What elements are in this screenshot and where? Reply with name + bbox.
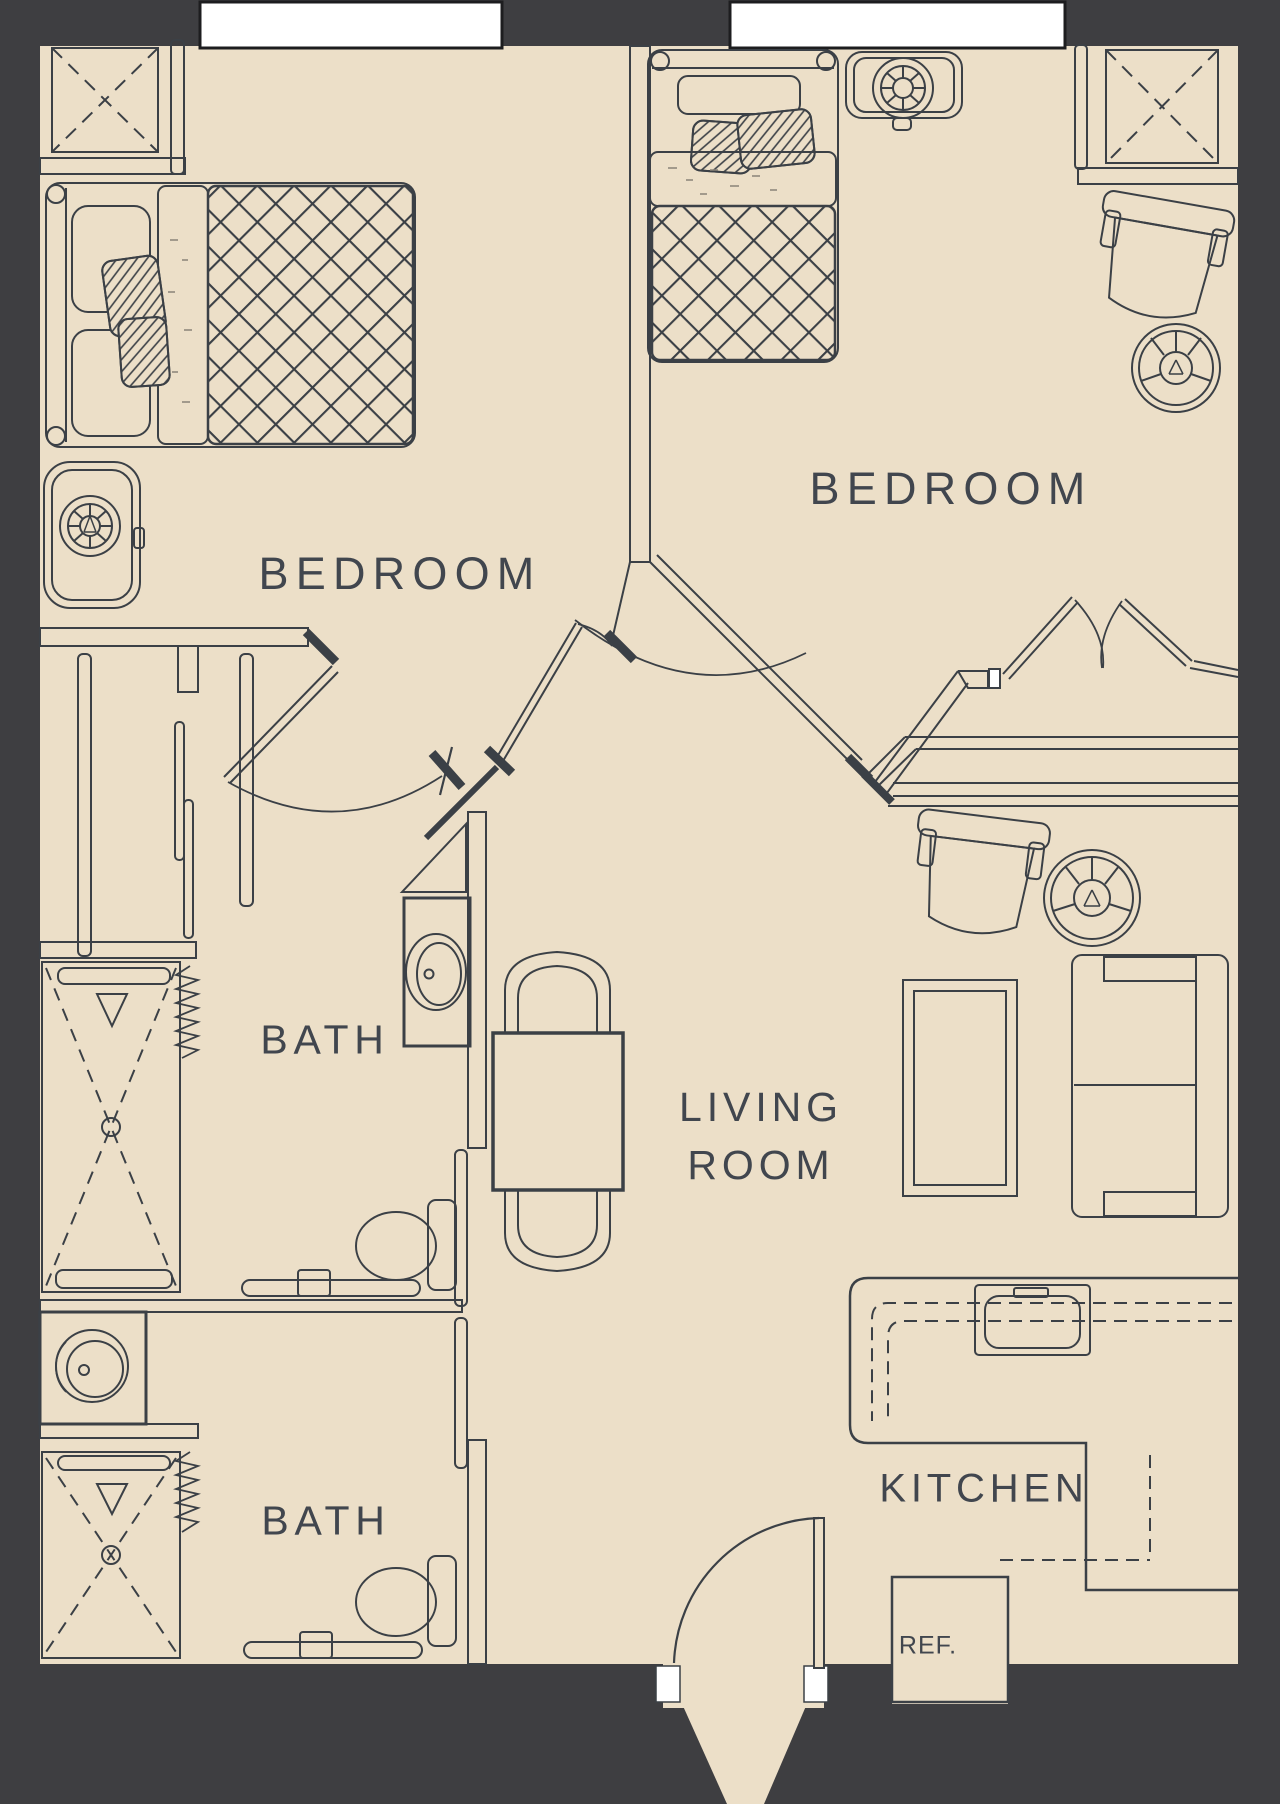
room-label-bath-lower: BATH	[261, 1498, 390, 1545]
room-label-bedroom-left: BEDROOM	[259, 548, 542, 600]
room-label-living-room: LIVING ROOM	[679, 1078, 843, 1194]
floor-plan-drawing	[0, 0, 1280, 1804]
room-label-bath-upper: BATH	[260, 1017, 389, 1064]
room-label-kitchen: KITCHEN	[879, 1467, 1088, 1512]
floor-plan: BEDROOM BEDROOM BATH BATH LIVING ROOM KI…	[0, 0, 1280, 1804]
entry-opening	[663, 1664, 824, 1708]
room-label-refrigerator: REF.	[899, 1632, 957, 1661]
room-label-bedroom-right: BEDROOM	[810, 463, 1093, 515]
dining-table-icon	[493, 1033, 623, 1190]
